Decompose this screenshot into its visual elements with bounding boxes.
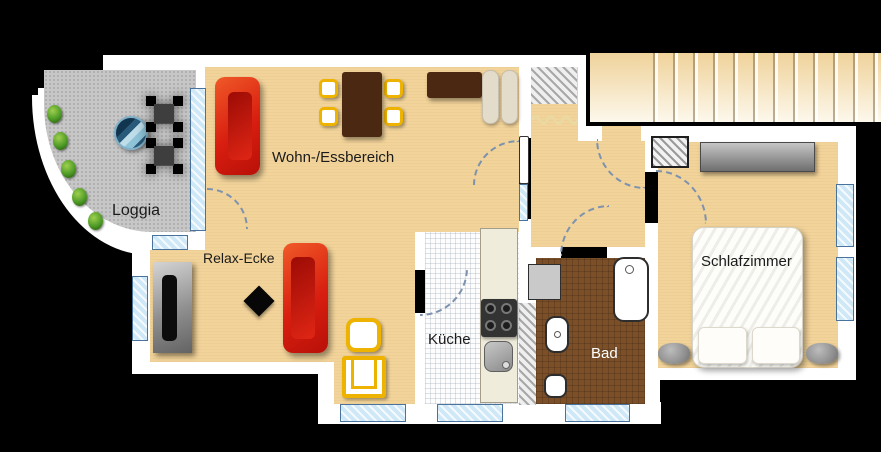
plant-icon (53, 132, 68, 150)
dining-table-icon (342, 72, 382, 137)
bench-cushion-icon (482, 70, 499, 124)
label-bedroom: Schlafzimmer (701, 253, 792, 270)
armchair-back-icon (346, 318, 381, 352)
bench-cushion-icon (501, 70, 518, 124)
balcony-chair-icon (146, 96, 183, 132)
toilet-icon (544, 374, 567, 398)
nightstand-icon (658, 343, 690, 364)
wall-bedroom-bottom (645, 366, 856, 380)
washbasin-icon (545, 316, 569, 353)
window-bottom-kitchen (437, 404, 503, 422)
dining-chair-icon (319, 79, 338, 98)
wardrobe-icon (700, 142, 815, 172)
sofa-relax (283, 243, 328, 353)
opening-wave-icon (531, 113, 577, 125)
dining-chair-icon (384, 107, 403, 126)
wall-kitchen-bath-hatched (519, 303, 536, 405)
window-bottom-bath (565, 404, 630, 422)
window-bedroom-lower (836, 257, 854, 321)
plant-icon (72, 188, 87, 206)
wall-living-hall-top (519, 55, 531, 138)
label-relax: Relax-Ecke (203, 250, 275, 266)
stairs-treads (653, 53, 881, 122)
balcony-chair-icon (146, 138, 183, 174)
plant-icon (47, 105, 62, 123)
wall-kitchen-left-b (415, 313, 425, 407)
floor-plan: Loggia Wohn-/Essbereich Relax-Ecke Küche… (0, 0, 881, 452)
pillow-icon (752, 327, 800, 364)
window-relax-left (132, 276, 148, 341)
label-living: Wohn-/Essbereich (272, 149, 394, 166)
kitchen-sink-icon (484, 341, 513, 372)
plant-icon (88, 212, 103, 230)
stove-icon (481, 299, 517, 337)
sideboard-icon (427, 72, 482, 98)
shaft-hall (531, 67, 577, 104)
wall-step (318, 358, 334, 408)
window-loggia-bottom (152, 235, 188, 250)
wall-kitchen-left-a (415, 230, 425, 270)
armchair-seat-icon (342, 356, 386, 398)
sofa-living (215, 77, 260, 175)
plant-icon (61, 160, 76, 178)
shower-icon (528, 264, 561, 300)
chimney-block (651, 136, 689, 168)
tv-board-icon (153, 262, 192, 353)
balcony-table-icon (114, 116, 148, 150)
window-bedroom-upper (836, 184, 854, 247)
dining-chair-icon (384, 79, 403, 98)
label-bath: Bad (591, 345, 618, 362)
bed-icon (692, 227, 803, 368)
label-kitchen: Küche (428, 331, 471, 348)
window-bottom-relax (340, 404, 406, 422)
bathtub-icon (613, 257, 649, 322)
dining-chair-icon (319, 107, 338, 126)
sidelight-hall (519, 184, 528, 221)
pillow-icon (698, 327, 747, 364)
loggia-glazed-door (190, 88, 206, 231)
staircase (586, 49, 881, 126)
label-loggia: Loggia (112, 202, 160, 220)
wall-bedroom-right (838, 121, 856, 380)
door-leaf-living-hall (519, 136, 529, 184)
nightstand-icon (806, 343, 838, 364)
